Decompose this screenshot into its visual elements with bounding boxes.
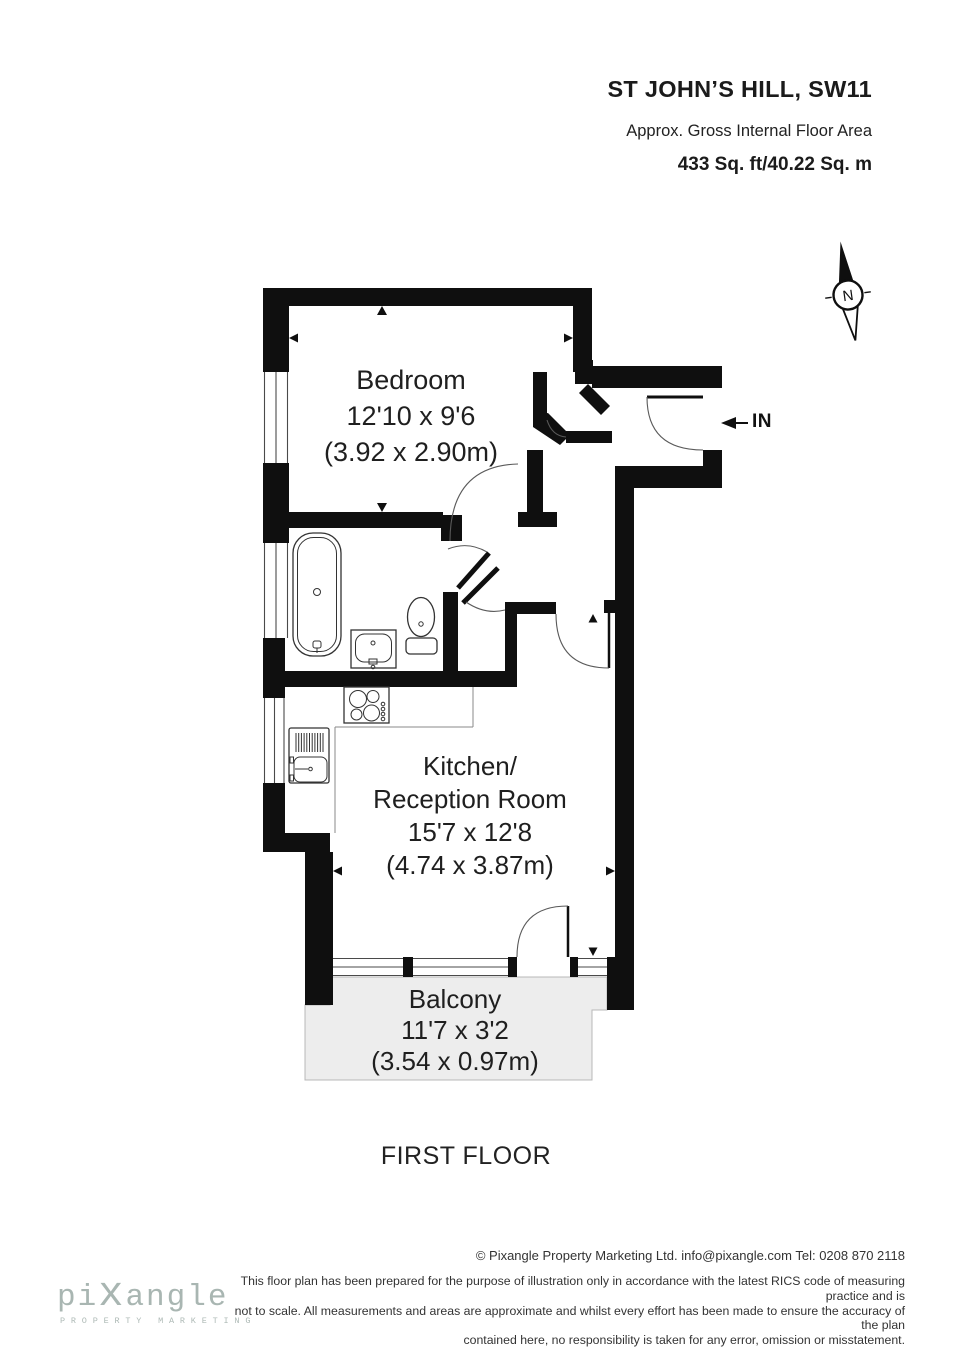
bathroom-window: [265, 543, 288, 638]
entrance-arrow-icon: [721, 417, 748, 429]
footer-disclaimer: This floor plan has been prepared for th…: [215, 1274, 905, 1348]
disclaimer-line: not to scale. All measurements and areas…: [215, 1304, 905, 1334]
balcony-windows: [333, 959, 607, 976]
toilet-icon: [406, 598, 437, 655]
kitchen-label: Kitchen/ Reception Room 15'7 x 12'8 (4.7…: [320, 750, 620, 882]
entrance-label: IN: [752, 411, 772, 433]
pixangle-logo: pixangle PROPERTY MARKETING: [57, 1277, 256, 1326]
balcony-name: Balcony: [300, 984, 610, 1015]
logo-tagline: PROPERTY MARKETING: [60, 1316, 256, 1326]
bedroom-dims-imperial: 12'10 x 9'6: [266, 398, 556, 434]
logo-wordmark: pixangle: [57, 1277, 256, 1315]
logo-part: angle: [125, 1280, 228, 1315]
entrance-door: [647, 397, 703, 450]
kitchen-name-line1: Kitchen/: [320, 750, 620, 783]
balcony-dims-metric: (3.54 x 0.97m): [300, 1046, 610, 1077]
balcony-dims-imperial: 11'7 x 3'2: [300, 1015, 610, 1046]
balcony-door: [517, 906, 568, 957]
footer-copyright: © Pixangle Property Marketing Ltd. info@…: [385, 1248, 905, 1263]
logo-part: pi: [57, 1280, 98, 1315]
kitchen-dims-imperial: 15'7 x 12'8: [320, 816, 620, 849]
hob-icon: [344, 687, 389, 723]
floorplan-page: ST JOHN’S HILL, SW11 Approx. Gross Inter…: [0, 0, 960, 1358]
bedroom-label: Bedroom 12'10 x 9'6 (3.92 x 2.90m): [266, 362, 556, 470]
kitchen-name-line2: Reception Room: [320, 783, 620, 816]
bathtub-icon: [293, 533, 341, 656]
disclaimer-line: contained here, no responsibility is tak…: [215, 1333, 905, 1348]
disclaimer-line: This floor plan has been prepared for th…: [215, 1274, 905, 1304]
kitchen-door: [556, 613, 609, 668]
bedroom-name: Bedroom: [266, 362, 556, 398]
kitchen-dims-metric: (4.74 x 3.87m): [320, 849, 620, 882]
balcony-label: Balcony 11'7 x 3'2 (3.54 x 0.97m): [300, 984, 610, 1077]
bedroom-dims-metric: (3.92 x 2.90m): [266, 434, 556, 470]
north-compass-icon: N: [818, 238, 877, 343]
floor-title: FIRST FLOOR: [346, 1142, 586, 1171]
logo-part-x: x: [98, 1270, 125, 1318]
kitchen-side-window: [265, 698, 285, 783]
bathroom-sink-icon: [351, 630, 396, 669]
